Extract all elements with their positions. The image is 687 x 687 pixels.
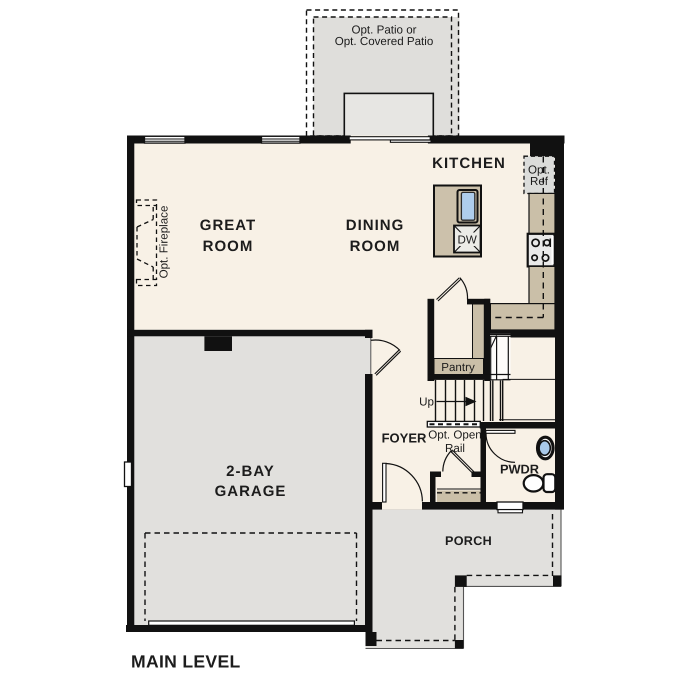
svg-text:Opt. Fireplace: Opt. Fireplace	[158, 206, 171, 279]
svg-text:Ref: Ref	[530, 175, 549, 188]
svg-text:ROOM: ROOM	[350, 238, 401, 255]
svg-text:FOYER: FOYER	[382, 430, 427, 445]
svg-text:Opt. Covered Patio: Opt. Covered Patio	[335, 35, 434, 48]
svg-text:Up: Up	[419, 396, 434, 409]
svg-text:PORCH: PORCH	[445, 534, 492, 548]
svg-text:DW: DW	[458, 234, 477, 247]
svg-text:DINING: DINING	[346, 217, 405, 234]
svg-text:MAIN LEVEL: MAIN LEVEL	[131, 652, 241, 672]
svg-text:2-BAY: 2-BAY	[226, 463, 275, 480]
svg-text:KITCHEN: KITCHEN	[432, 155, 506, 172]
svg-text:Pantry: Pantry	[441, 361, 475, 374]
svg-text:GREAT: GREAT	[200, 217, 256, 234]
svg-text:GARAGE: GARAGE	[215, 483, 287, 500]
svg-text:ROOM: ROOM	[203, 238, 254, 255]
svg-text:Opt. Open: Opt. Open	[428, 429, 482, 442]
